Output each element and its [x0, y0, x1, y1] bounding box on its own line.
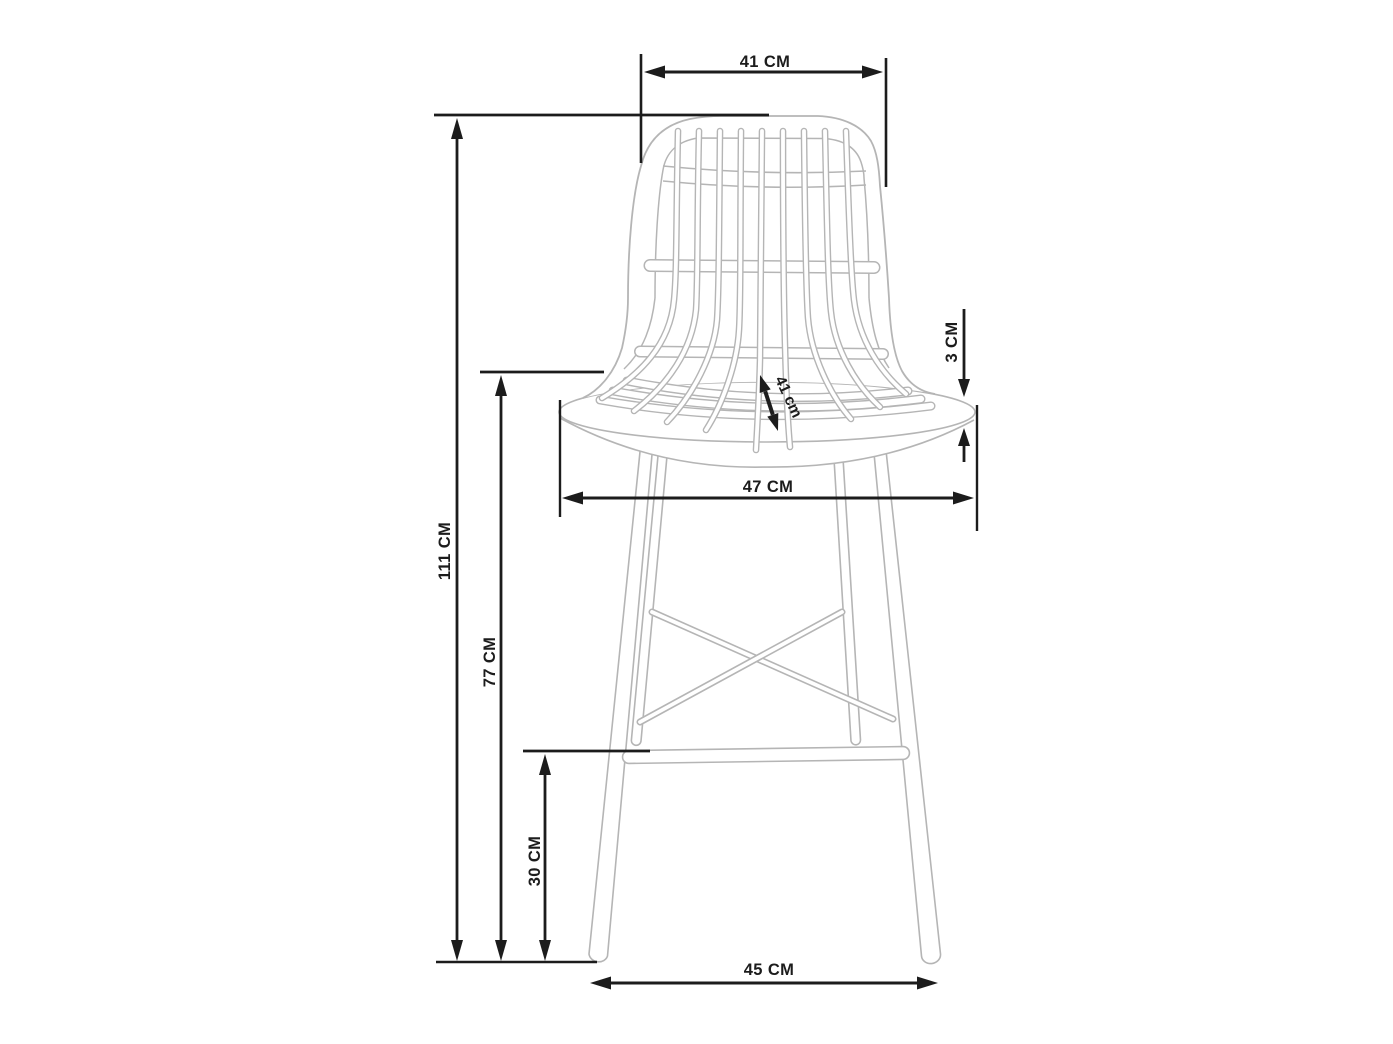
svg-text:3 CM: 3 CM: [943, 321, 961, 362]
svg-text:45 CM: 45 CM: [744, 961, 795, 979]
svg-text:77 CM: 77 CM: [481, 637, 499, 688]
svg-text:41 CM: 41 CM: [740, 53, 791, 71]
svg-text:30 CM: 30 CM: [526, 836, 544, 887]
svg-text:111 CM: 111 CM: [436, 522, 454, 580]
svg-text:47 CM: 47 CM: [743, 478, 794, 496]
